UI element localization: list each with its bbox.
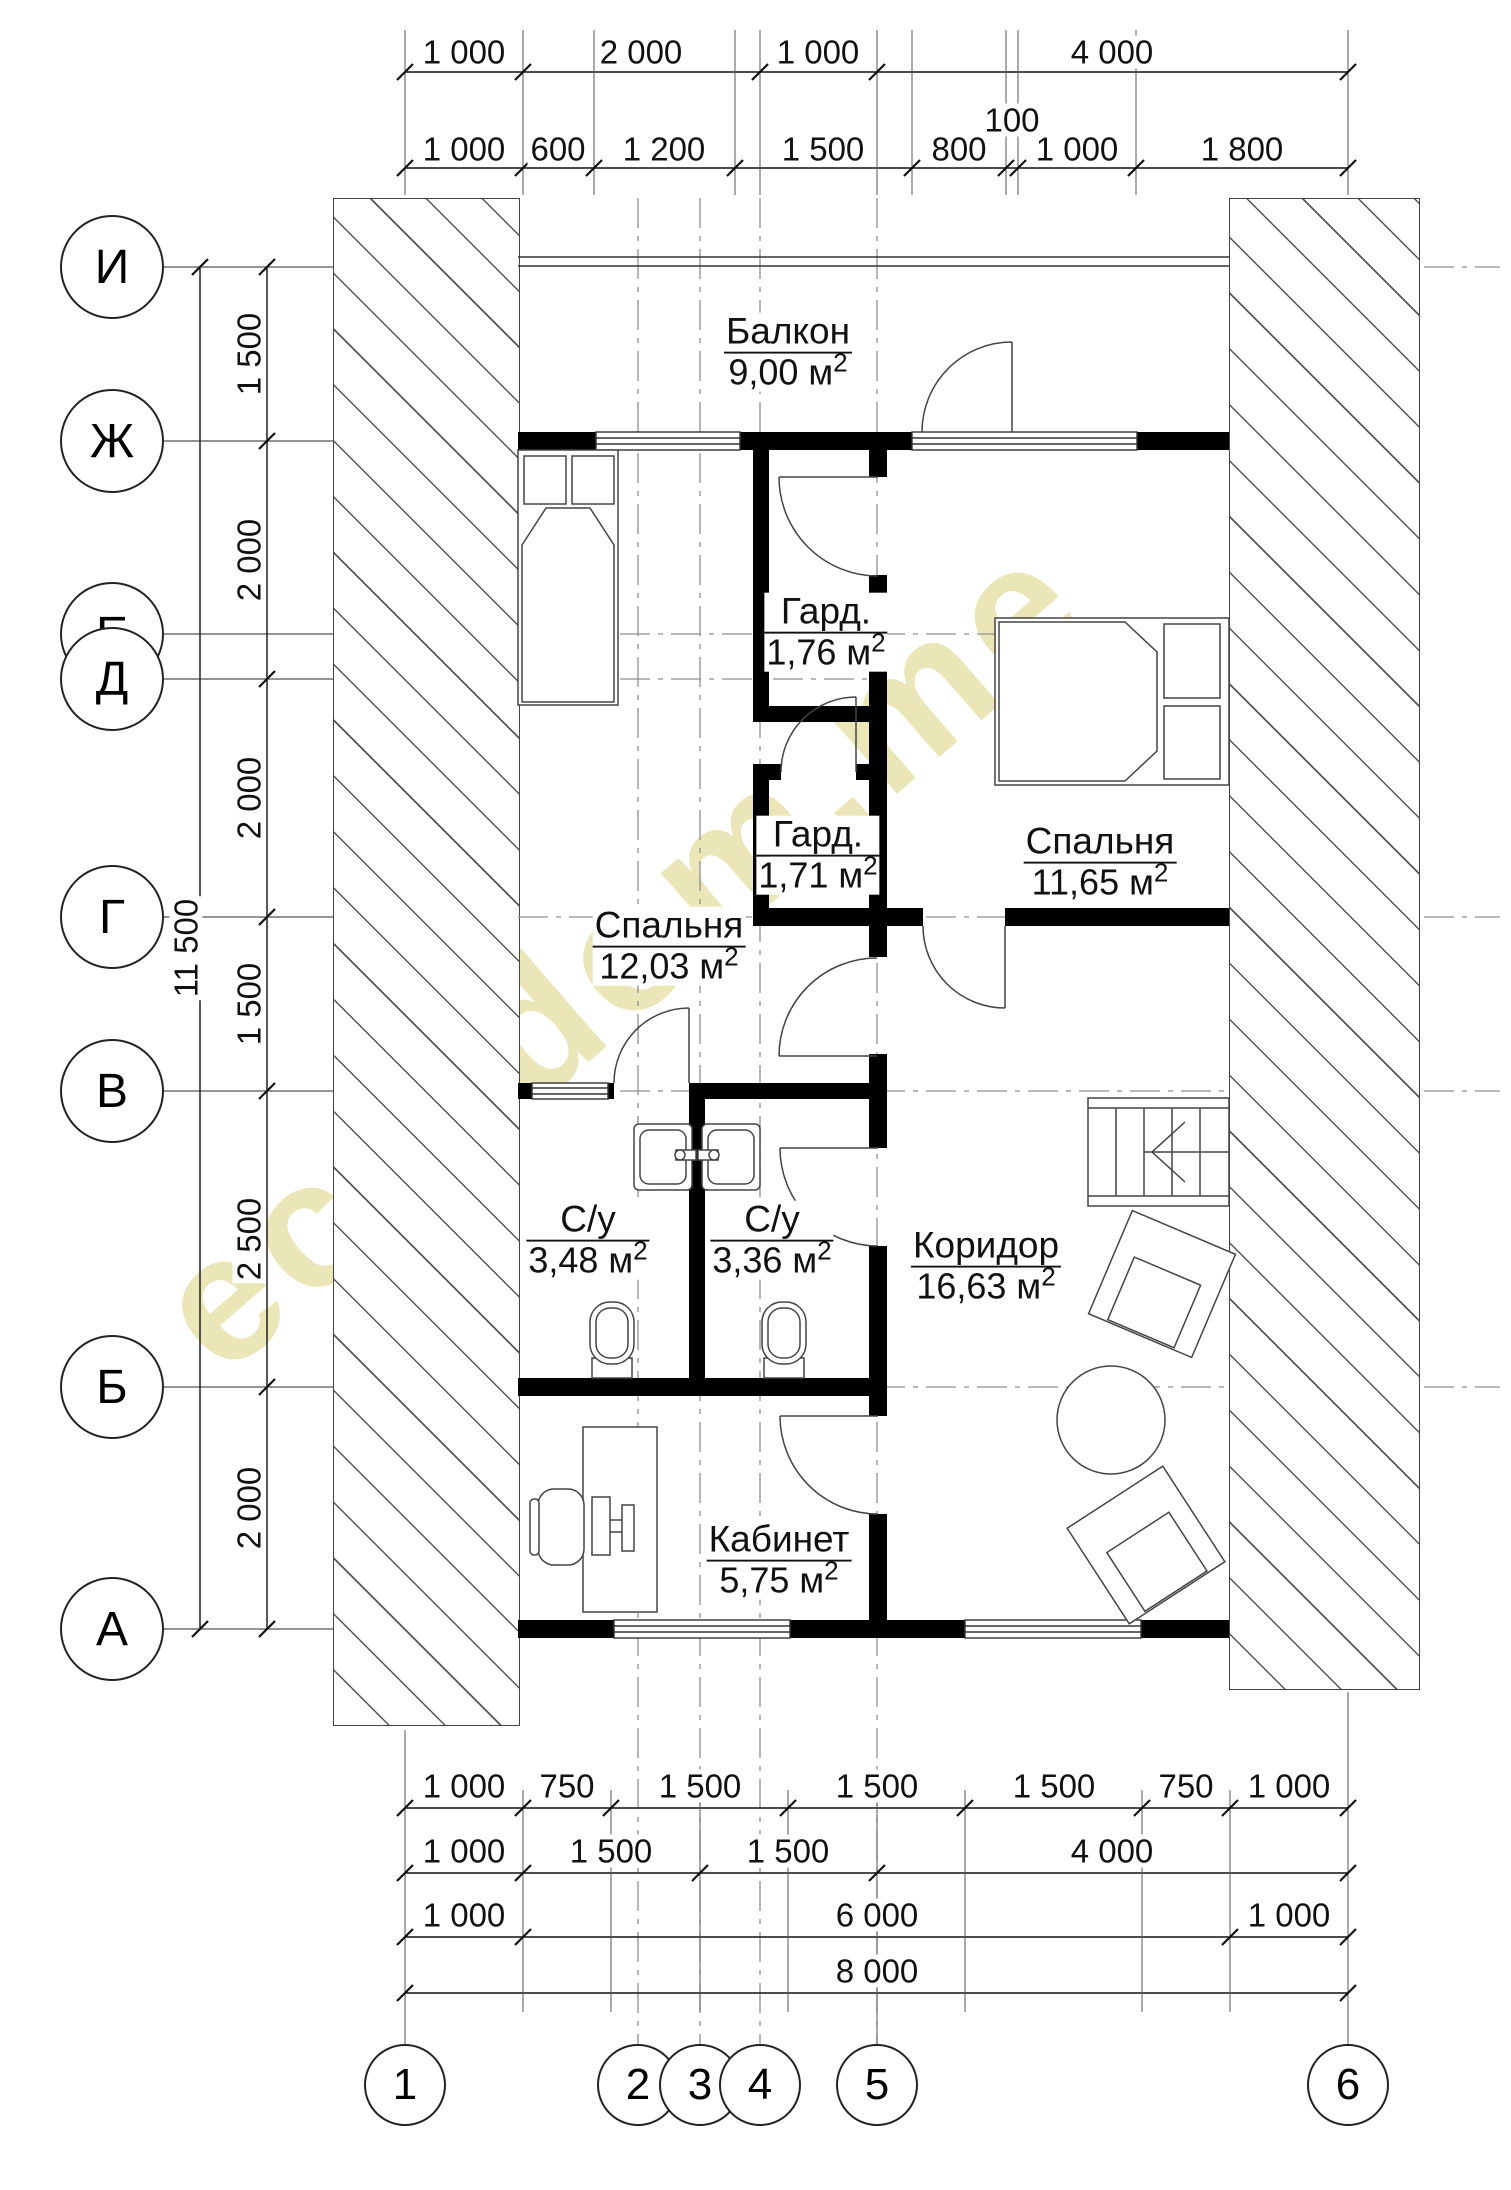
dim-b3-2: 1 000 [1245,1899,1334,1932]
dim-b1-0: 1 000 [420,1770,509,1803]
stairs [1088,1098,1229,1206]
dim-top2-0: 1 000 [420,133,509,166]
dim-b3-0: 1 000 [420,1899,509,1932]
axis-col-1: 1 [364,2044,446,2126]
dim-b2-2: 1 500 [744,1835,833,1868]
balcony-railing [518,257,1229,266]
door-bedroom-right [923,926,1005,1008]
dim-b1-4: 1 500 [1010,1770,1099,1803]
dim-b4-0: 8 000 [833,1955,922,1988]
dim-top1-1: 2 000 [597,36,686,69]
door-bedroom-left [779,958,877,1056]
room-label-bathroom-left: С/у 3,48 м2 [526,1201,649,1280]
axis-row-I: И [60,215,164,319]
dim-b2-1: 1 500 [567,1835,656,1868]
door-balcony [922,342,1012,432]
dim-b2-0: 1 000 [420,1835,509,1868]
dim-b1-3: 1 500 [833,1770,922,1803]
dim-top2-6: 1 800 [1198,133,1287,166]
armchair-upper [1089,1211,1236,1358]
door-wardrobe-upper [779,477,878,576]
dim-b1-5: 750 [1155,1770,1216,1803]
dim-top1-2: 1 000 [774,36,863,69]
toilet-left [590,1302,634,1378]
dim-b2-3: 4 000 [1068,1835,1157,1868]
dim-left-1: 2 000 [233,516,266,605]
sink-left [634,1124,696,1190]
room-label-bedroom-left: Спальня 12,03 м2 [593,907,746,986]
dim-top2-3: 1 500 [779,133,868,166]
dim-top1-0: 1 000 [420,36,509,69]
room-label-office: Кабинет 5,75 м2 [707,1521,852,1600]
axis-col-5: 5 [836,2044,918,2126]
room-label-balcony: Балкон 9,00 м2 [724,313,852,392]
axis-row-D: Д [60,627,164,731]
axis-row-B: Б [60,1335,164,1439]
room-label-bedroom-right: Спальня 11,65 м2 [1024,823,1177,902]
room-label-wardrobe-upper: Гард. 1,76 м2 [764,593,887,672]
dim-top2-4: 800 [928,133,989,166]
bed-left [518,450,618,705]
bed-right [995,618,1229,785]
axis-col-6: 6 [1307,2044,1389,2126]
axis-row-G: Г [60,865,164,969]
dim-left-0: 1 500 [233,310,266,399]
room-label-bathroom-right: С/у 3,36 м2 [710,1201,833,1280]
door-bathroom-left [614,1008,689,1083]
office-chair [530,1489,584,1565]
sink-right [698,1124,760,1190]
desk [583,1427,657,1612]
axis-row-Zh: Ж [60,389,164,493]
dim-left-3: 1 500 [233,960,266,1049]
round-table [1057,1366,1165,1474]
dim-left-5: 2 000 [233,1464,266,1553]
dim-b1-2: 1 500 [656,1770,745,1803]
dim-b3-1: 6 000 [833,1899,922,1932]
dim-left-2: 2 000 [233,754,266,843]
toilet-right [762,1302,806,1378]
dim-top2-1: 600 [527,133,588,166]
dim-top1-3: 4 000 [1068,36,1157,69]
room-label-wardrobe-lower: Гард. 1,71 м2 [756,816,879,895]
door-office [780,1416,878,1514]
axis-row-V: В [60,1039,164,1143]
axis-row-A: А [60,1577,164,1681]
axis-col-4: 4 [719,2044,801,2126]
dim-top2-2: 1 200 [620,133,709,166]
floor-plan-sheet: eco-dom.me [0,0,1511,2190]
dim-left-4: 2 500 [233,1195,266,1284]
dim-b1-6: 1 000 [1245,1770,1334,1803]
dim-left-total: 11 500 [170,896,203,1000]
dim-top2-5: 1 000 [1033,133,1122,166]
armchair-lower [1067,1466,1225,1624]
dim-b1-1: 750 [536,1770,597,1803]
room-label-corridor: Коридор 16,63 м2 [911,1227,1061,1306]
